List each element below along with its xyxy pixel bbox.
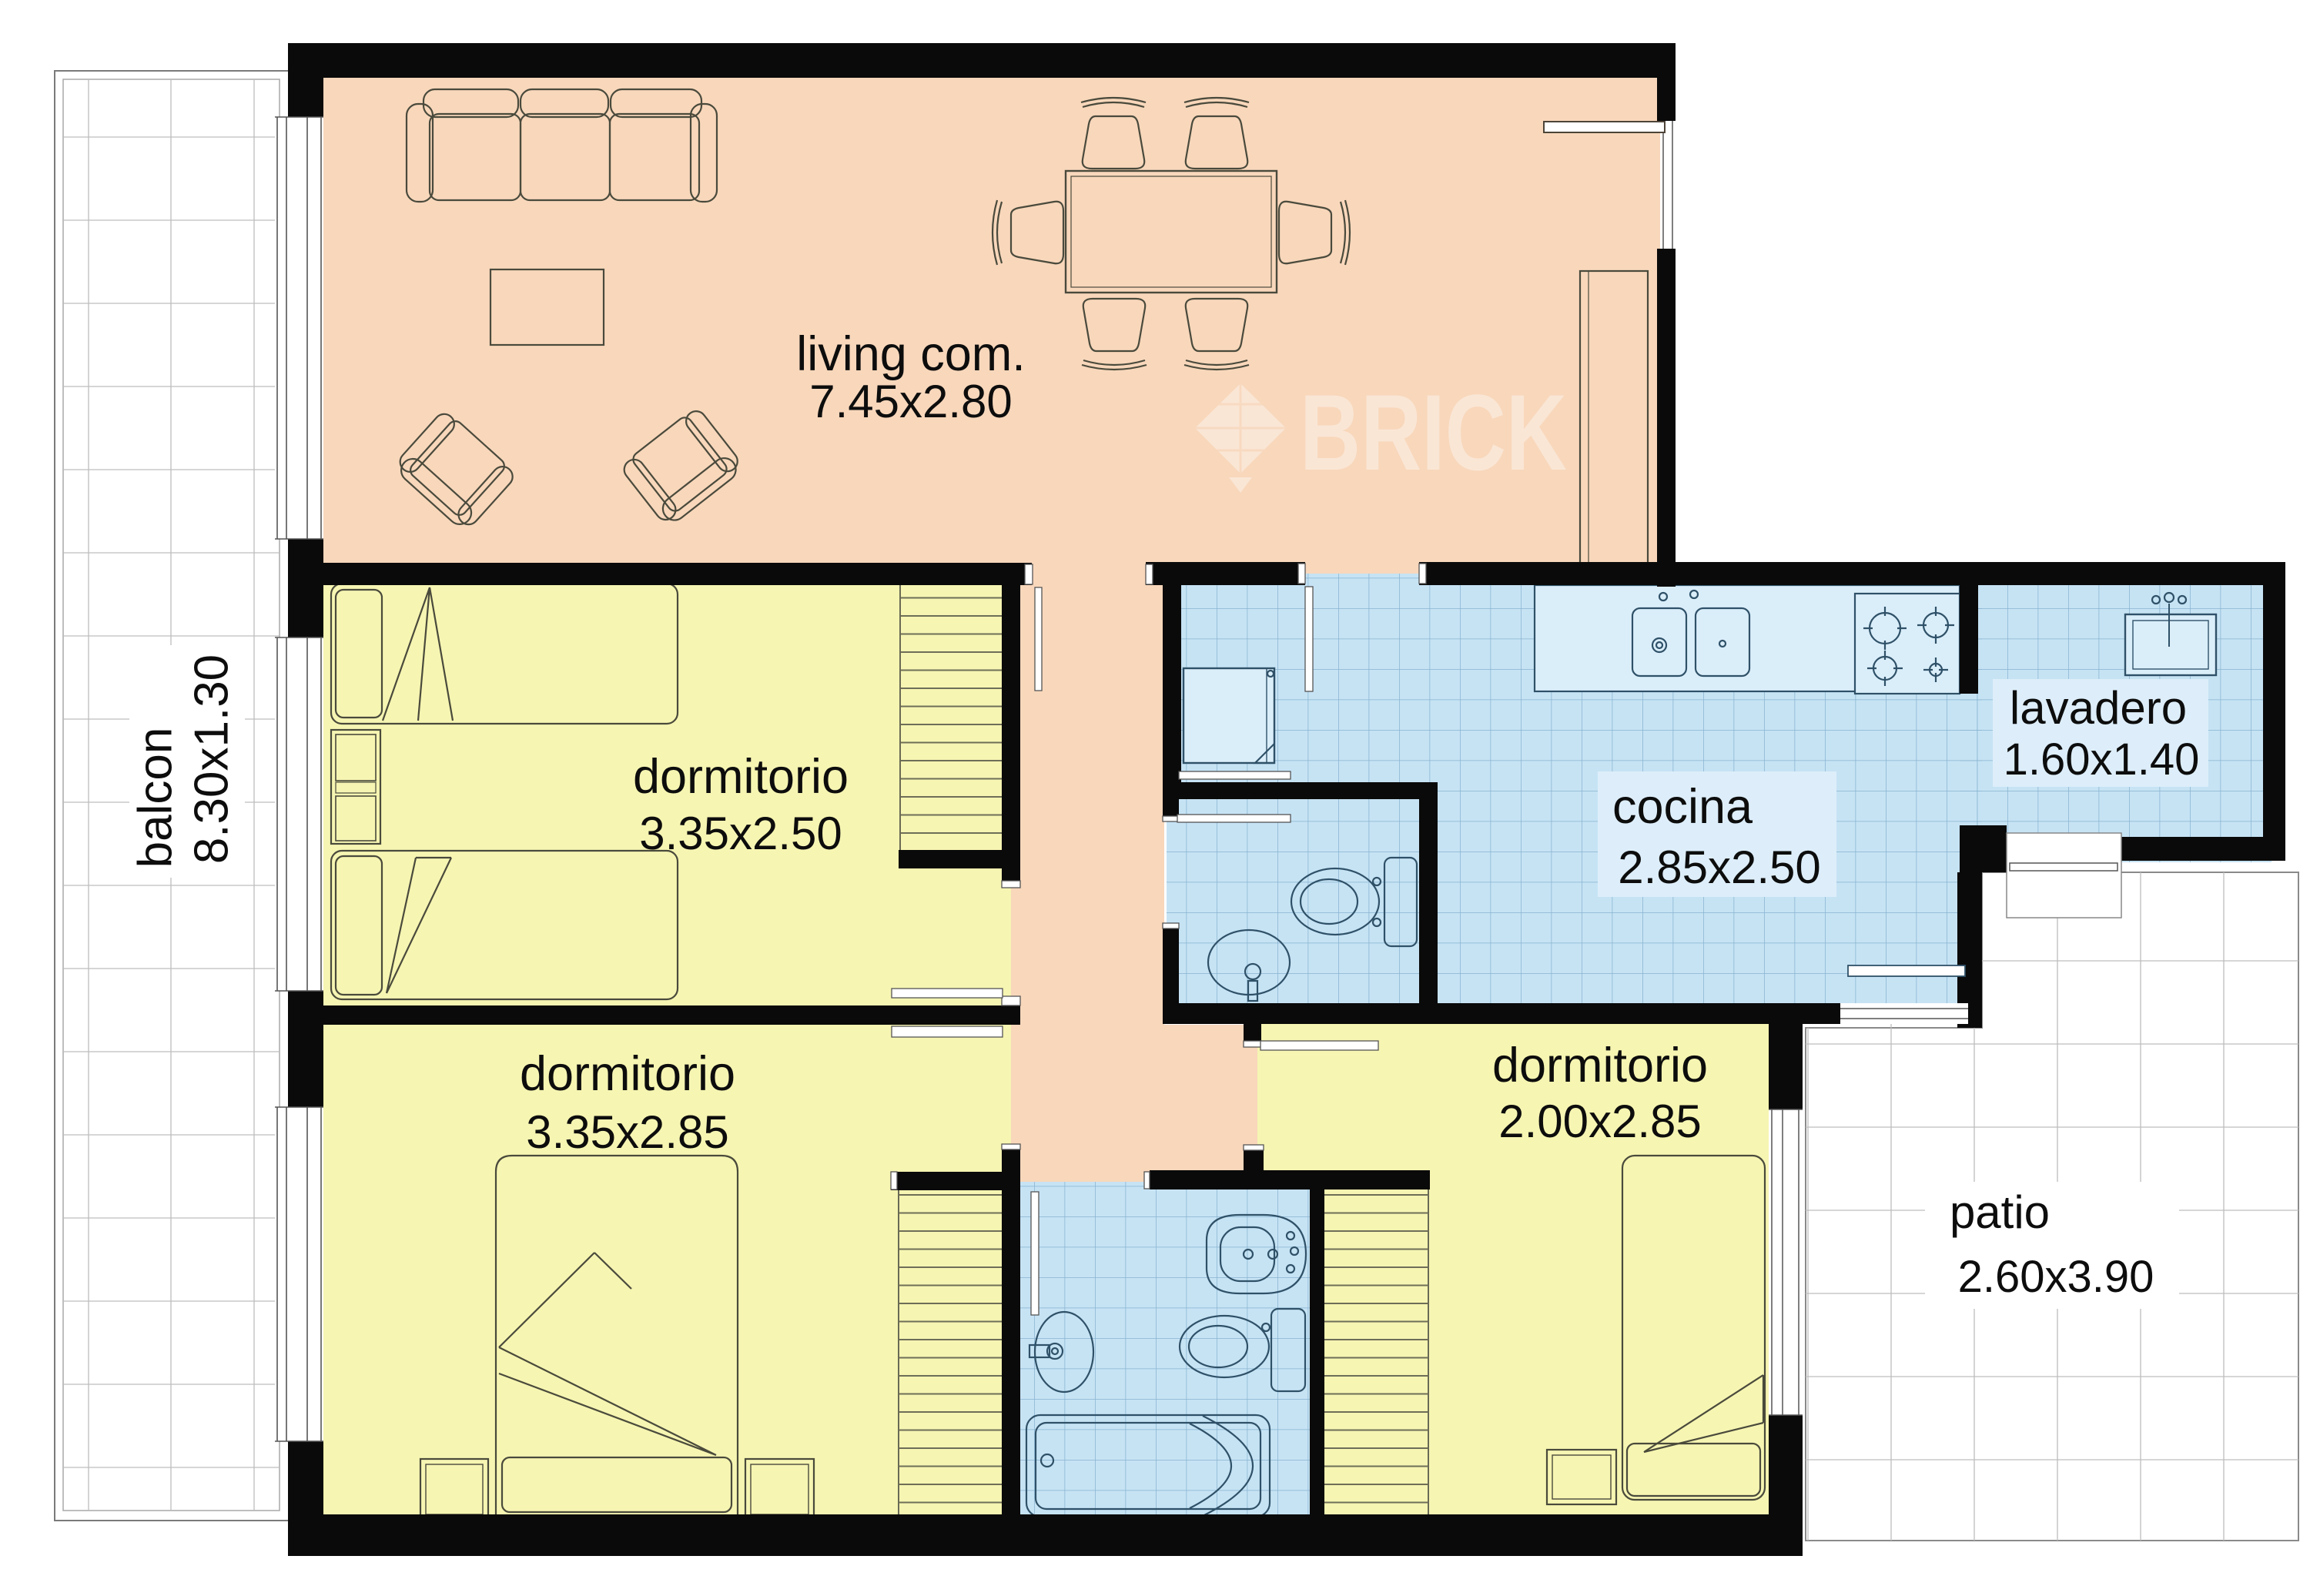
svg-text:8.30x1.30: 8.30x1.30 [186,654,239,864]
svg-text:dormitorio: dormitorio [633,750,849,804]
svg-text:2.00x2.85: 2.00x2.85 [1498,1096,1702,1147]
svg-text:dormitorio: dormitorio [520,1047,735,1101]
svg-text:3.35x2.85: 3.35x2.85 [526,1106,729,1158]
svg-text:balcon: balcon [129,728,182,868]
svg-text:7.45x2.80: 7.45x2.80 [809,376,1013,427]
svg-text:patio: patio [1950,1186,2050,1238]
svg-text:BRICK: BRICK [1300,372,1567,493]
svg-text:dormitorio: dormitorio [1492,1039,1708,1092]
svg-text:2.60x3.90: 2.60x3.90 [1958,1252,2154,1302]
svg-text:lavadero: lavadero [2010,682,2187,734]
svg-text:2.85x2.50: 2.85x2.50 [1618,841,1821,893]
svg-text:1.60x1.40: 1.60x1.40 [2004,734,2200,785]
svg-text:living com.: living com. [796,327,1026,381]
svg-text:3.35x2.50: 3.35x2.50 [639,808,842,859]
svg-text:cocina: cocina [1612,780,1753,834]
